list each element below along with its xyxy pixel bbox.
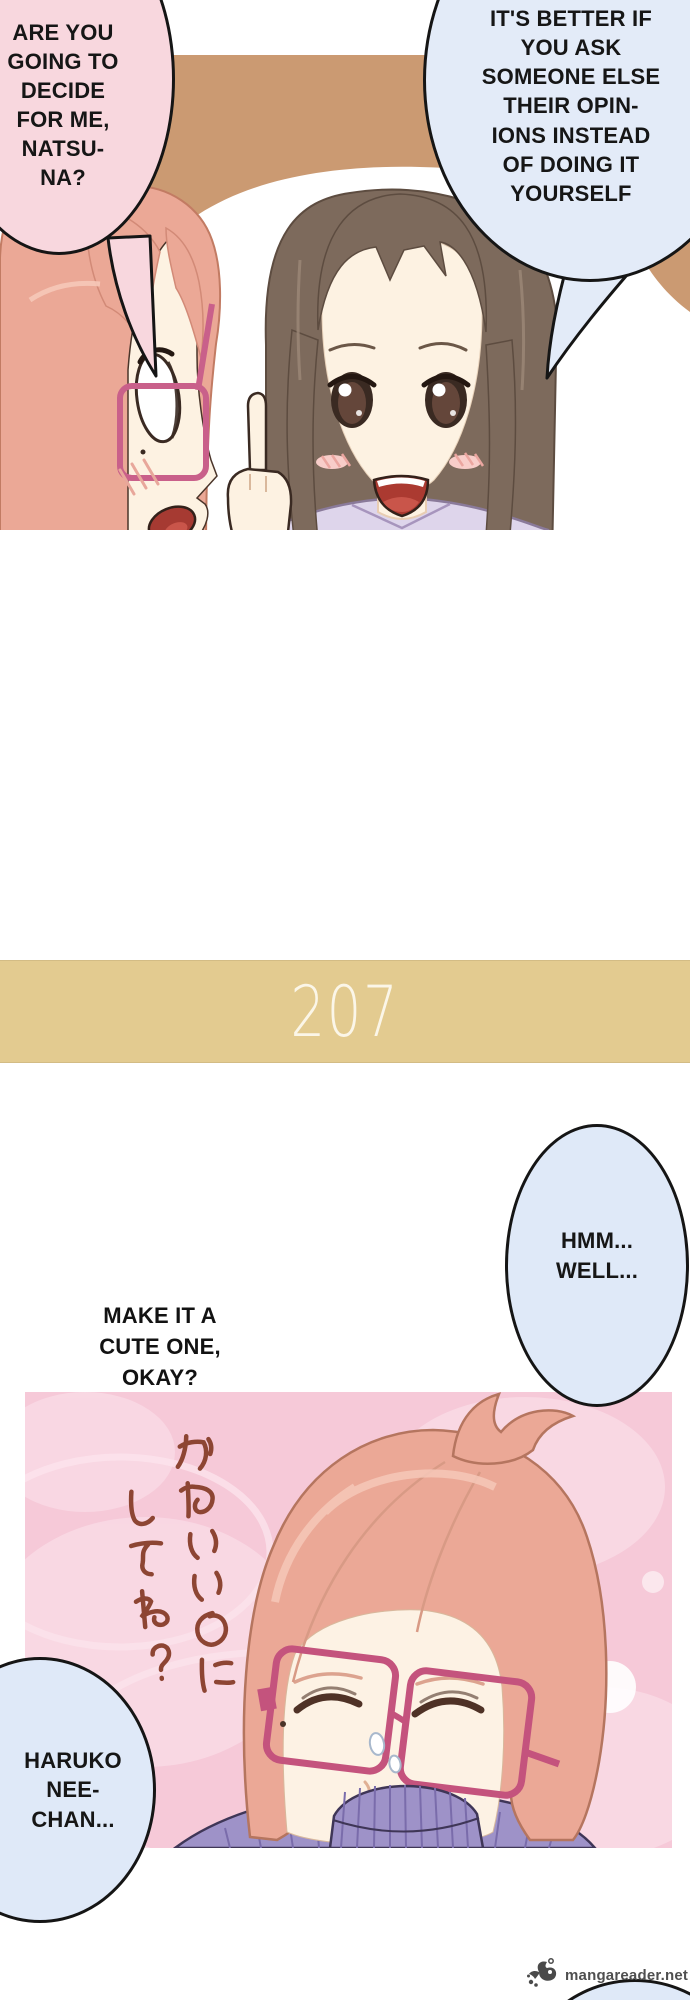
speech-bubble-tail (98, 234, 160, 380)
speech-text: IT'S BETTER IF YOU ASK SOMEONE ELSE THEI… (482, 4, 660, 207)
light-glow (642, 1571, 664, 1593)
chapter-number: 207 (291, 971, 400, 1053)
watermark: mangareader.net (526, 1956, 688, 1994)
mole (280, 1721, 286, 1727)
speech-text: HARUKO NEE- CHAN... (24, 1746, 122, 1833)
speech-text: ARE YOU GOING TO DECIDE FOR ME, NATSU- N… (7, 18, 118, 192)
japanese-text-column-right: かわいいのに (165, 1428, 220, 1748)
caption-make-it-cute: MAKE IT A CUTE ONE, OKAY? (40, 1300, 280, 1394)
goldfish-logo-icon (526, 1958, 562, 1992)
manga-page: ARE YOU GOING TO DECIDE FOR ME, NATSU- N… (0, 0, 690, 2000)
mole (141, 450, 146, 455)
hair-side-lock-right (484, 340, 515, 530)
speech-text: HMM... WELL... (556, 1226, 638, 1284)
chapter-number-band: 207 (0, 960, 690, 1063)
watermark-text: mangareader.net (565, 1967, 688, 1984)
speech-bubble-hmm-well: HMM... WELL... (505, 1124, 689, 1407)
